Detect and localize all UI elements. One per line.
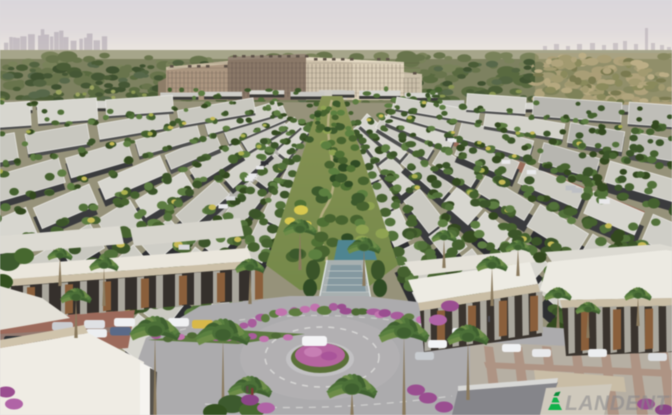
- svg-text:LANDENTY: LANDENTY: [565, 392, 672, 415]
